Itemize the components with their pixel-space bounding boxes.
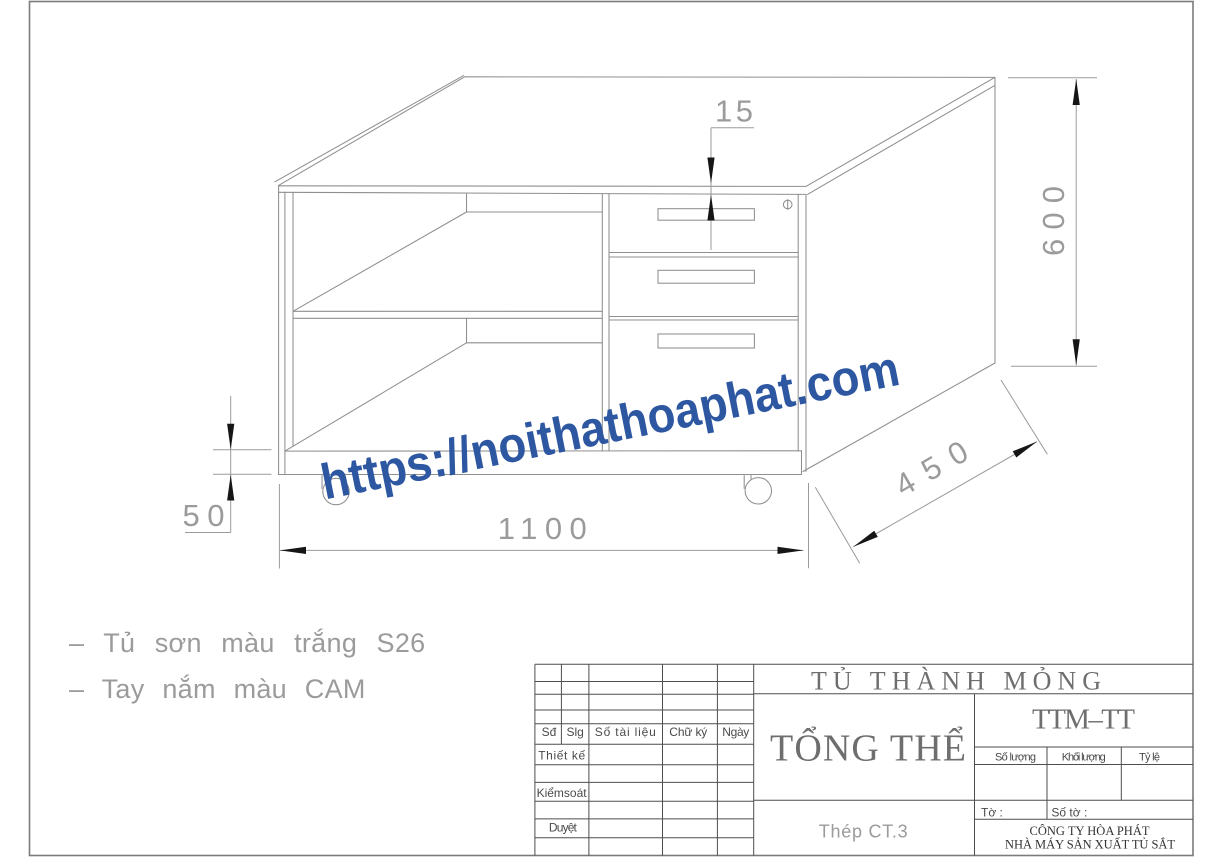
svg-text:TTM–TT: TTM–TT [1032, 704, 1135, 736]
svg-text:Tờ :: Tờ : [981, 806, 1003, 820]
svg-text:Ngày: Ngày [722, 725, 749, 739]
svg-text:NHÀ MÁY SẢN XUẤT TỦ SẮT: NHÀ MÁY SẢN XUẤT TỦ SẮT [1005, 837, 1175, 852]
svg-text:Tỷ lệ: Tỷ lệ [1139, 752, 1160, 764]
svg-text:Kiểmsoát: Kiểmsoát [537, 786, 588, 800]
svg-text:Sđ: Sđ [542, 725, 557, 739]
svg-text:Số lượng: Số lượng [995, 752, 1036, 764]
svg-text:Số tài liệu: Số tài liệu [595, 725, 656, 739]
svg-text:Thiết kế: Thiết kế [538, 749, 585, 763]
svg-text:Số tờ :: Số tờ : [1051, 806, 1087, 820]
svg-text:– Tủ sơn màu trắng S26: – Tủ sơn màu trắng S26 [69, 627, 425, 658]
svg-text:600: 600 [1036, 186, 1071, 256]
svg-text:Khối lượng: Khối lượng [1062, 752, 1106, 764]
svg-text:Duyệt: Duyệt [549, 821, 578, 835]
svg-text:TỔNG THỂ: TỔNG THỂ [770, 727, 966, 770]
svg-text:Chữ ký: Chữ ký [669, 725, 707, 739]
svg-text:CÔNG TY HÒA PHÁT: CÔNG TY HÒA PHÁT [1030, 824, 1150, 838]
svg-text:– Tay nắm màu CAM: – Tay nắm màu CAM [69, 673, 366, 704]
svg-text:Thép CT.3: Thép CT.3 [819, 822, 908, 842]
svg-text:Slg: Slg [567, 725, 584, 739]
